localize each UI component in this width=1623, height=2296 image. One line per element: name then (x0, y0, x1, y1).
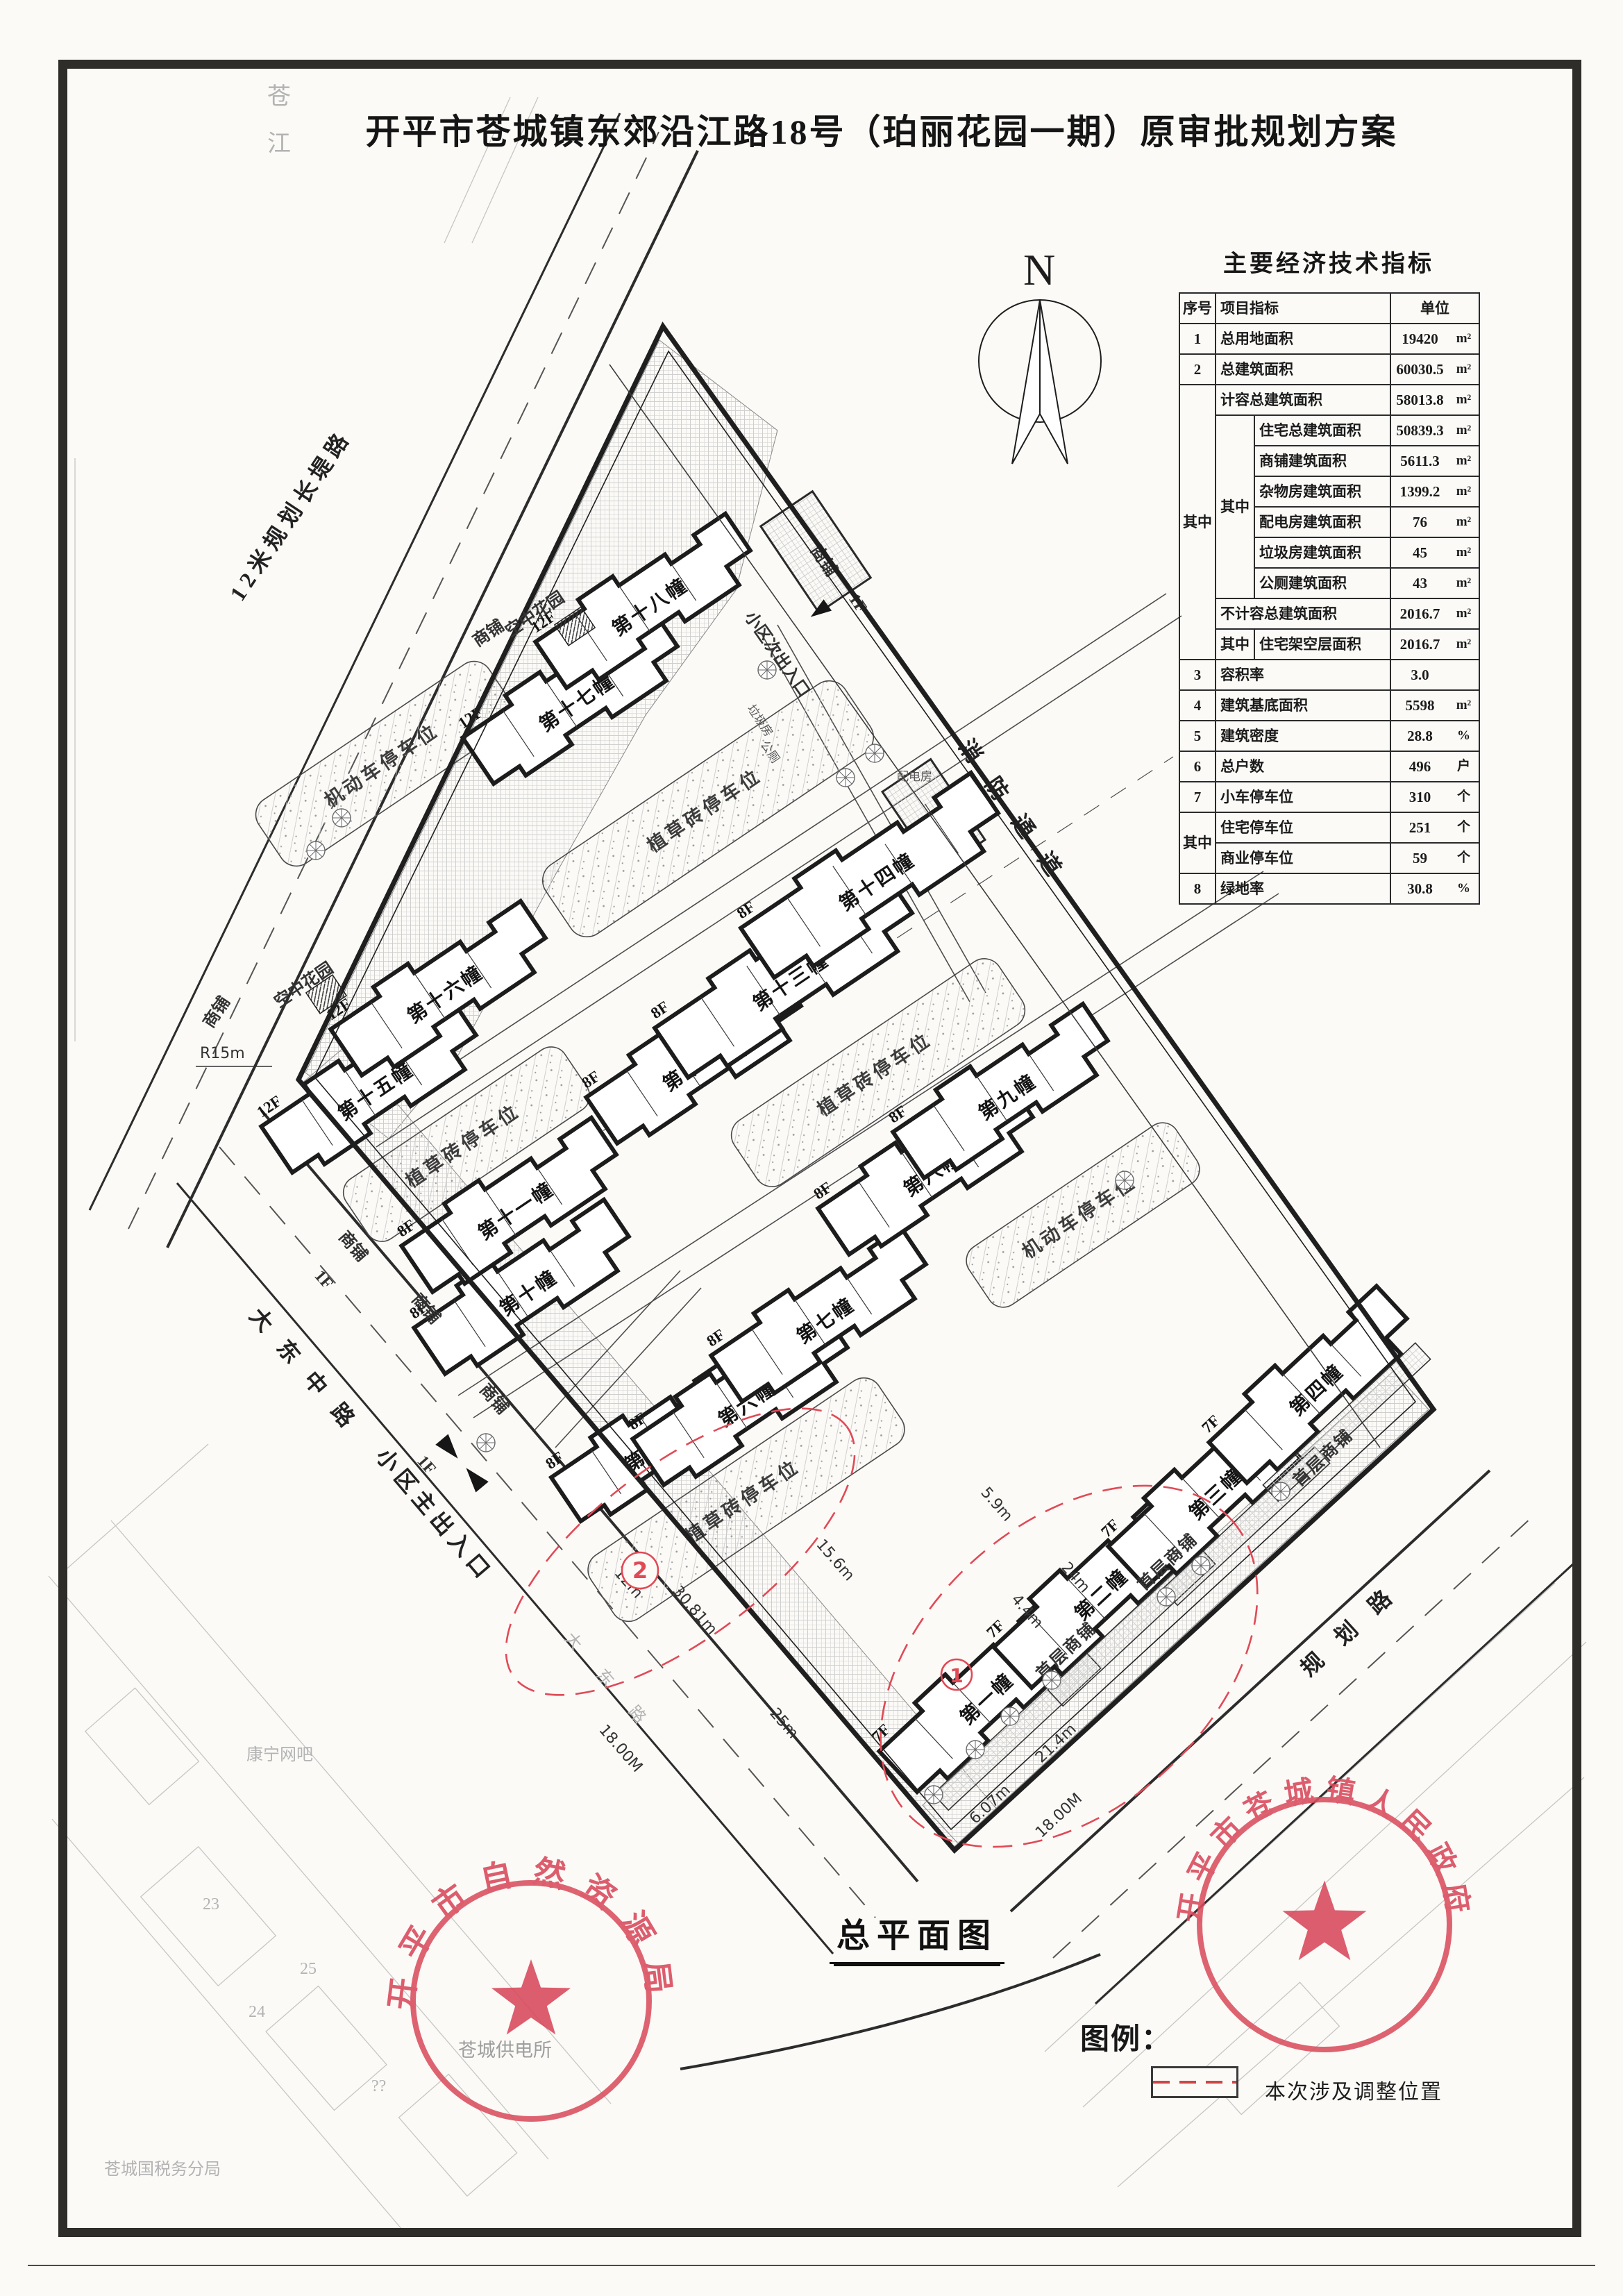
power-station-label: 苍城供电所 (458, 2040, 552, 2061)
row-item: 商铺建筑面积 (1254, 446, 1390, 476)
table-row: 2 总建筑面积 60030.5 m² (1179, 354, 1479, 385)
bottom-rule (28, 2265, 1595, 2266)
stamp-town-government: 开平市苍城镇人民政府 (1174, 1773, 1475, 2050)
circled-number-1: 1 (950, 1664, 963, 1687)
row-value: 310 (1390, 782, 1449, 812)
north-compass: N (979, 245, 1101, 464)
stamp-star-icon (1282, 1880, 1366, 1960)
north-letter: N (1023, 245, 1055, 294)
row-value: 2016.7 (1390, 598, 1449, 629)
row-unit: m² (1449, 537, 1479, 568)
row-unit: m² (1449, 415, 1479, 446)
row-unit: 个 (1449, 843, 1479, 873)
row-item: 不计容总建筑面积 (1216, 598, 1390, 629)
row-item: 住宅总建筑面积 (1254, 415, 1390, 446)
row-unit: m² (1449, 507, 1479, 537)
row-value: 58013.8 (1390, 385, 1449, 415)
rowgroup-zhong: 其中 (1179, 385, 1216, 660)
stamp-star-icon (491, 1959, 571, 2035)
row-no: 5 (1179, 721, 1216, 751)
dim-15.6m: 15.6m (812, 1536, 857, 1585)
tax-office-label: 苍城国税务分局 (104, 2160, 221, 2179)
row-item: 住宅停车位 (1216, 812, 1390, 843)
table-row: 5 建筑密度 28.8 % (1179, 721, 1479, 751)
row-unit: m² (1449, 568, 1479, 598)
road-label-changdi: 12米规划长堤路 (225, 425, 356, 605)
row-no: 2 (1179, 354, 1216, 385)
row-unit: m² (1449, 690, 1479, 721)
row-no: 8 (1179, 873, 1216, 904)
header-unit: 单位 (1390, 293, 1479, 324)
dim-30.81m: 30.81m (668, 1583, 720, 1639)
dim-road-width: 18.00M (1032, 1790, 1086, 1841)
row-unit: 个 (1449, 812, 1479, 843)
indicators-table: 序号 项目指标 单位 1 总用地面积 19420 m² 2 总建筑面积 6003… (1179, 292, 1480, 905)
parcel-number: 25 (300, 1960, 317, 1978)
side-gate-label: 小区次出入口 (741, 608, 814, 701)
road-label-dadong: 大东中路 (245, 1303, 372, 1446)
row-unit: m² (1449, 354, 1479, 385)
row-unit: m² (1449, 324, 1479, 354)
legend-title: 图例： (1080, 2016, 1172, 2058)
table-row: 6 总户数 496 户 (1179, 751, 1479, 782)
drawing-title: 总平面图 (830, 1908, 1004, 1964)
row-value: 496 (1390, 751, 1449, 782)
road-label-planned: 规划路 (1295, 1570, 1413, 1682)
row-value: 60030.5 (1390, 354, 1449, 385)
row-item: 建筑密度 (1216, 721, 1390, 751)
rowgroup-zhong-sub: 其中 (1216, 629, 1254, 660)
table-row: 不计容总建筑面积 2016.7 m² (1179, 598, 1479, 629)
circled-number-2: 2 (632, 1557, 648, 1584)
row-unit: m² (1449, 598, 1479, 629)
row-item: 小车停车位 (1216, 782, 1390, 812)
table-row: 其中 住宅停车位 251 个 (1179, 812, 1479, 843)
shop-label: 商铺 (199, 993, 234, 1031)
page-title: 开平市苍城镇东郊沿江路18号（珀丽花园一期）原审批规划方案 (222, 104, 1541, 154)
row-value: 30.8 (1390, 873, 1449, 904)
table-row: 8 绿地率 30.8 % (1179, 873, 1479, 904)
row-item: 总用地面积 (1216, 324, 1390, 354)
row-item: 容积率 (1216, 660, 1390, 690)
dim-r15m: R15m (200, 1045, 245, 1062)
table-row: 其中 计容总建筑面积 58013.8 m² (1179, 385, 1479, 415)
row-item: 杂物房建筑面积 (1254, 476, 1390, 507)
row-unit: m² (1449, 446, 1479, 476)
row-no: 6 (1179, 751, 1216, 782)
parcel-number: ?? (371, 2077, 386, 2095)
table-row: 4 建筑基底面积 5598 m² (1179, 690, 1479, 721)
table-row: 商业停车位 59 个 (1179, 843, 1479, 873)
row-value: 19420 (1390, 324, 1449, 354)
legend-dashed-line (1153, 2081, 1236, 2084)
row-value: 5598 (1390, 690, 1449, 721)
row-value: 1399.2 (1390, 476, 1449, 507)
rowgroup-zhong: 其中 (1179, 812, 1216, 873)
row-unit: % (1449, 873, 1479, 904)
row-value: 45 (1390, 537, 1449, 568)
floor-1f-label: 1F (310, 1267, 336, 1293)
row-value: 43 (1390, 568, 1449, 598)
rowgroup-zhong-sub: 其中 (1216, 415, 1254, 598)
row-item: 住宅架空层面积 (1254, 629, 1390, 660)
row-value: 2016.7 (1390, 629, 1449, 660)
row-item: 垃圾房建筑面积 (1254, 537, 1390, 568)
net-bar-label: 康宁网吧 (246, 1745, 313, 1764)
row-unit: m² (1449, 629, 1479, 660)
row-item: 总建筑面积 (1216, 354, 1390, 385)
header-item: 项目指标 (1216, 293, 1390, 324)
header-no: 序号 (1179, 293, 1216, 324)
parcel-number: 23 (203, 1895, 219, 1913)
table-row: 3 容积率 3.0 (1179, 660, 1479, 690)
row-unit (1449, 660, 1479, 690)
dim-5.9m: 5.9m (977, 1484, 1016, 1525)
row-value: 3.0 (1390, 660, 1449, 690)
row-value: 251 (1390, 812, 1449, 843)
shop-label: 商铺 (469, 616, 507, 651)
table-header-row: 序号 项目指标 单位 (1179, 293, 1479, 324)
row-item: 公厕建筑面积 (1254, 568, 1390, 598)
document-page: 23 24 25 ?? 苍江 康宁网吧 苍城供电所 苍城国税务分局 12米规划长… (0, 0, 1623, 2296)
row-no: 3 (1179, 660, 1216, 690)
row-item: 配电房建筑面积 (1254, 507, 1390, 537)
row-unit: 户 (1449, 751, 1479, 782)
stamp-natural-resources: 开平市自然资源局 (383, 1853, 678, 2119)
row-value: 5611.3 (1390, 446, 1449, 476)
row-item: 计容总建筑面积 (1216, 385, 1390, 415)
row-item: 绿地率 (1216, 873, 1390, 904)
row-unit: 个 (1449, 782, 1479, 812)
table-row: 其中 住宅架空层面积 2016.7 m² (1179, 629, 1479, 660)
row-item: 建筑基底面积 (1216, 690, 1390, 721)
row-no: 4 (1179, 690, 1216, 721)
parcel-number: 24 (249, 2003, 265, 2021)
row-value: 76 (1390, 507, 1449, 537)
row-value: 50839.3 (1390, 415, 1449, 446)
legend-symbol-box (1151, 2066, 1238, 2098)
row-value: 28.8 (1390, 721, 1449, 751)
row-item: 总户数 (1216, 751, 1390, 782)
legend-item-label: 本次涉及调整位置 (1265, 2075, 1443, 2105)
row-unit: m² (1449, 476, 1479, 507)
row-item: 商业停车位 (1216, 843, 1390, 873)
power-room-label: 配电房 (897, 770, 932, 783)
row-value: 59 (1390, 843, 1449, 873)
context-parcel-numbers: 23 24 25 ?? (203, 1895, 386, 2095)
indicators-table-title: 主要经济技术指标 (1179, 244, 1479, 278)
table-row: 7 小车停车位 310 个 (1179, 782, 1479, 812)
table-row: 其中 住宅总建筑面积 50839.3 m² (1179, 415, 1479, 446)
row-unit: % (1449, 721, 1479, 751)
table-row: 1 总用地面积 19420 m² (1179, 324, 1479, 354)
row-no: 7 (1179, 782, 1216, 812)
row-unit: m² (1449, 385, 1479, 415)
row-no: 1 (1179, 324, 1216, 354)
